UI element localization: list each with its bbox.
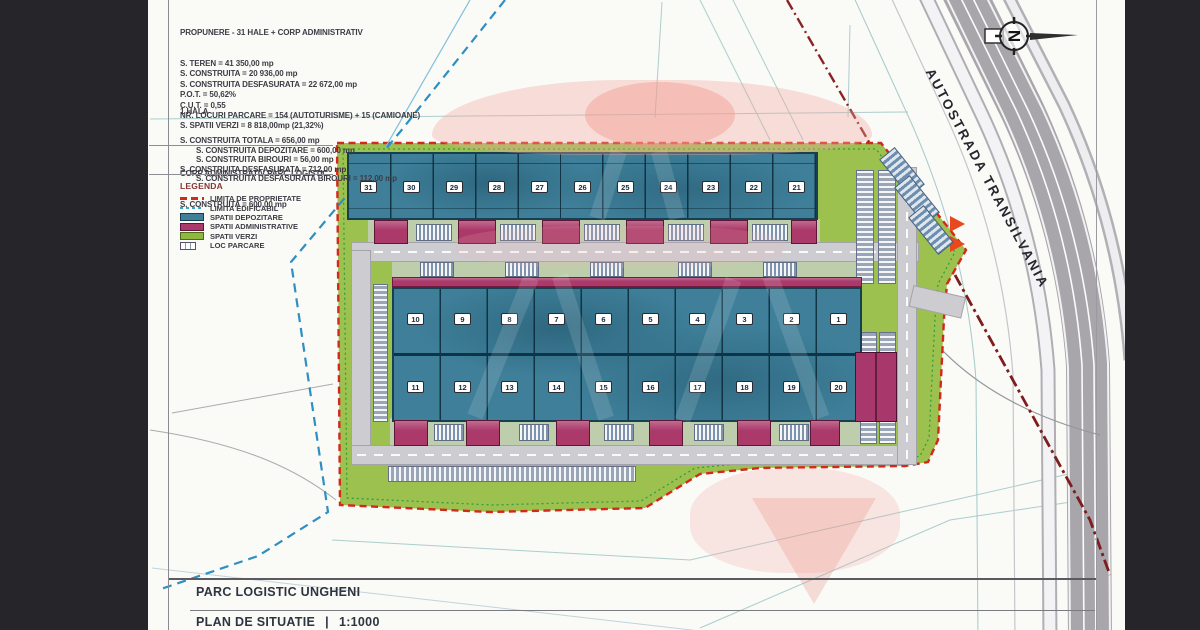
- admin-annex: [791, 220, 817, 244]
- parking-strip-bottom: [388, 466, 636, 482]
- loading-dock: [604, 424, 634, 441]
- hall-title: 1 HALA: [180, 107, 397, 117]
- admin-strip-mid: [392, 277, 862, 287]
- loading-dock: [584, 224, 620, 241]
- warehouse-unit-13: 13: [501, 381, 518, 393]
- warehouse-unit-10: 10: [407, 313, 424, 325]
- legend-swatch-blue-dot: [180, 207, 204, 209]
- black-margin-right: [1125, 0, 1200, 630]
- admin-headquarters-building: [855, 352, 897, 422]
- warehouse-unit-28: 28: [488, 181, 505, 193]
- warehouse-unit-19: 19: [783, 381, 800, 393]
- admin-annex: [374, 220, 408, 244]
- warehouse-unit-21: 21: [788, 181, 805, 193]
- loading-dock: [416, 224, 452, 241]
- legend-item: LOC PARCARE: [180, 241, 301, 250]
- legend-item: LIMITA DE PROPRIETATE: [180, 194, 301, 203]
- admin-annex: [542, 220, 580, 244]
- bottom-road: [352, 446, 912, 464]
- sheet-title: PARC LOGISTIC UNGHENI: [196, 585, 360, 599]
- sheet-inner-border-left: [168, 0, 169, 630]
- warehouse-unit-6: 6: [595, 313, 612, 325]
- admin-annex: [466, 420, 500, 446]
- scale-value: 1:1000: [339, 615, 380, 629]
- warehouse-unit-27: 27: [531, 181, 548, 193]
- site-plan-scan: N 31302928272625242322211098765432111121…: [0, 0, 1200, 630]
- warehouse-unit-9: 9: [454, 313, 471, 325]
- legend-swatch-red-dash: [180, 197, 204, 200]
- divider-line: [149, 174, 333, 175]
- admin-annex: [649, 420, 683, 446]
- legend-label: LIMITA DE PROPRIETATE: [210, 194, 301, 203]
- warehouse-unit-16: 16: [642, 381, 659, 393]
- left-road: [352, 251, 370, 464]
- legend-item: SPATII DEPOZITARE: [180, 213, 301, 222]
- admin-annex: [710, 220, 748, 244]
- loading-dock: [420, 262, 454, 277]
- title-block-rule: [168, 578, 1097, 580]
- warehouse-unit-20: 20: [830, 381, 847, 393]
- plan-type-label: PLAN DE SITUATIE: [196, 615, 315, 629]
- warehouse-unit-14: 14: [548, 381, 565, 393]
- legend-swatch-magenta: [180, 223, 204, 231]
- warehouse-unit-22: 22: [745, 181, 762, 193]
- sheet-subtitle: PLAN DE SITUATIE|1:1000: [196, 615, 380, 629]
- admin-annex: [458, 220, 496, 244]
- legend-swatch-green: [180, 232, 204, 240]
- loading-dock: [779, 424, 809, 441]
- black-margin-left: [0, 0, 148, 630]
- warehouse-unit-18: 18: [736, 381, 753, 393]
- warehouse-unit-23: 23: [702, 181, 719, 193]
- warehouse-unit-26: 26: [574, 181, 591, 193]
- admin-annex: [394, 420, 428, 446]
- warehouse-unit-3: 3: [736, 313, 753, 325]
- loading-dock: [505, 262, 539, 277]
- loading-dock: [668, 224, 704, 241]
- loading-dock: [434, 424, 464, 441]
- entrance-road: [910, 286, 965, 317]
- warehouse-unit-4: 4: [689, 313, 706, 325]
- legend-swatch-teal: [180, 213, 204, 221]
- loading-dock: [763, 262, 797, 277]
- proposal-line: S. CONSTRUITA = 20 936,00 mp: [180, 69, 420, 79]
- warehouse-unit-11: 11: [407, 381, 424, 393]
- legend-swatch-parking: [180, 242, 196, 250]
- loading-dock: [500, 224, 536, 241]
- divider-line: [149, 145, 333, 146]
- legend-label: SPATII DEPOZITARE: [210, 213, 283, 222]
- central-road: [352, 243, 918, 261]
- loading-dock: [590, 262, 624, 277]
- legend-title: LEGENDA: [180, 181, 301, 191]
- separator: |: [325, 615, 329, 629]
- admin-annex: [810, 420, 840, 446]
- sheet-inner-border-right: [1096, 0, 1097, 630]
- admin-annex: [556, 420, 590, 446]
- legend-label: SPATII VERZI: [210, 232, 257, 241]
- loading-dock: [678, 262, 712, 277]
- legend-item: LIMITA EDIFICABIL: [180, 203, 301, 212]
- legend-label: SPATII ADMINISTRATIVE: [210, 222, 298, 231]
- admin-annex: [626, 220, 664, 244]
- legend-item: SPATII VERZI: [180, 232, 301, 241]
- warehouse-unit-7: 7: [548, 313, 565, 325]
- title-block-rule: [190, 610, 1095, 611]
- legend-label: LOC PARCARE: [210, 241, 264, 250]
- parking-strip-right-upper-a: [856, 170, 874, 284]
- warehouse-unit-29: 29: [446, 181, 463, 193]
- parking-strip-left: [373, 284, 388, 422]
- loading-dock: [752, 224, 788, 241]
- loading-dock: [519, 424, 549, 441]
- legend: LEGENDA LIMITA DE PROPRIETATELIMITA EDIF…: [180, 181, 301, 250]
- warehouse-unit-30: 30: [403, 181, 420, 193]
- proposal-line: S. TEREN = 41 350,00 mp: [180, 59, 420, 69]
- admin-annex: [737, 420, 771, 446]
- warehouse-unit-5: 5: [642, 313, 659, 325]
- warehouse-unit-1: 1: [830, 313, 847, 325]
- legend-item: SPATII ADMINISTRATIVE: [180, 222, 301, 231]
- warehouse-unit-25: 25: [617, 181, 634, 193]
- proposal-title: PROPUNERE - 31 HALE + CORP ADMINISTRATIV: [180, 28, 420, 38]
- loading-dock: [694, 424, 724, 441]
- legend-label: LIMITA EDIFICABIL: [210, 204, 278, 213]
- warehouse-unit-12: 12: [454, 381, 471, 393]
